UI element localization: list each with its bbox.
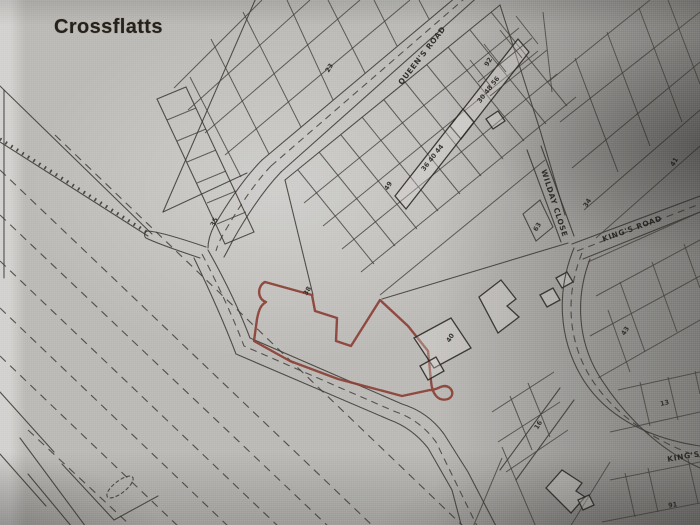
parcels-west-of-curve bbox=[473, 372, 594, 525]
plot-number: 49 bbox=[383, 180, 395, 192]
terrace-strip-35 bbox=[157, 87, 254, 244]
site-plan-photo: QUEEN'S ROADWILDAY CLOSEKING'S ROADKING'… bbox=[0, 0, 700, 525]
road-label-queens-road: QUEEN'S ROAD bbox=[396, 24, 447, 86]
building-40 bbox=[414, 318, 471, 368]
plot-number: 63 bbox=[532, 221, 544, 233]
road-label-kings-road-lower: KING'S bbox=[667, 449, 700, 464]
railway-corridor bbox=[0, 86, 465, 525]
parcels-top-right bbox=[543, 0, 700, 238]
railway-side-road bbox=[145, 231, 497, 525]
kings-road-road bbox=[500, 196, 700, 480]
plot-number: 43 bbox=[620, 325, 632, 337]
page-title: Crossflatts bbox=[54, 16, 163, 39]
plot-number: 13 bbox=[659, 398, 670, 408]
plot-number: 41 bbox=[669, 156, 681, 168]
plot-number: 35 bbox=[209, 216, 221, 228]
site-buildings bbox=[414, 272, 573, 380]
map-canvas: QUEEN'S ROADWILDAY CLOSEKING'S ROADKING'… bbox=[0, 0, 700, 525]
parcels-bottom-left bbox=[0, 392, 158, 525]
plot-number: 91 bbox=[668, 500, 679, 509]
plot-number: 16 bbox=[533, 419, 545, 431]
plot-number: 34 bbox=[582, 197, 594, 209]
queens-road-terrace-buildings bbox=[395, 16, 547, 209]
